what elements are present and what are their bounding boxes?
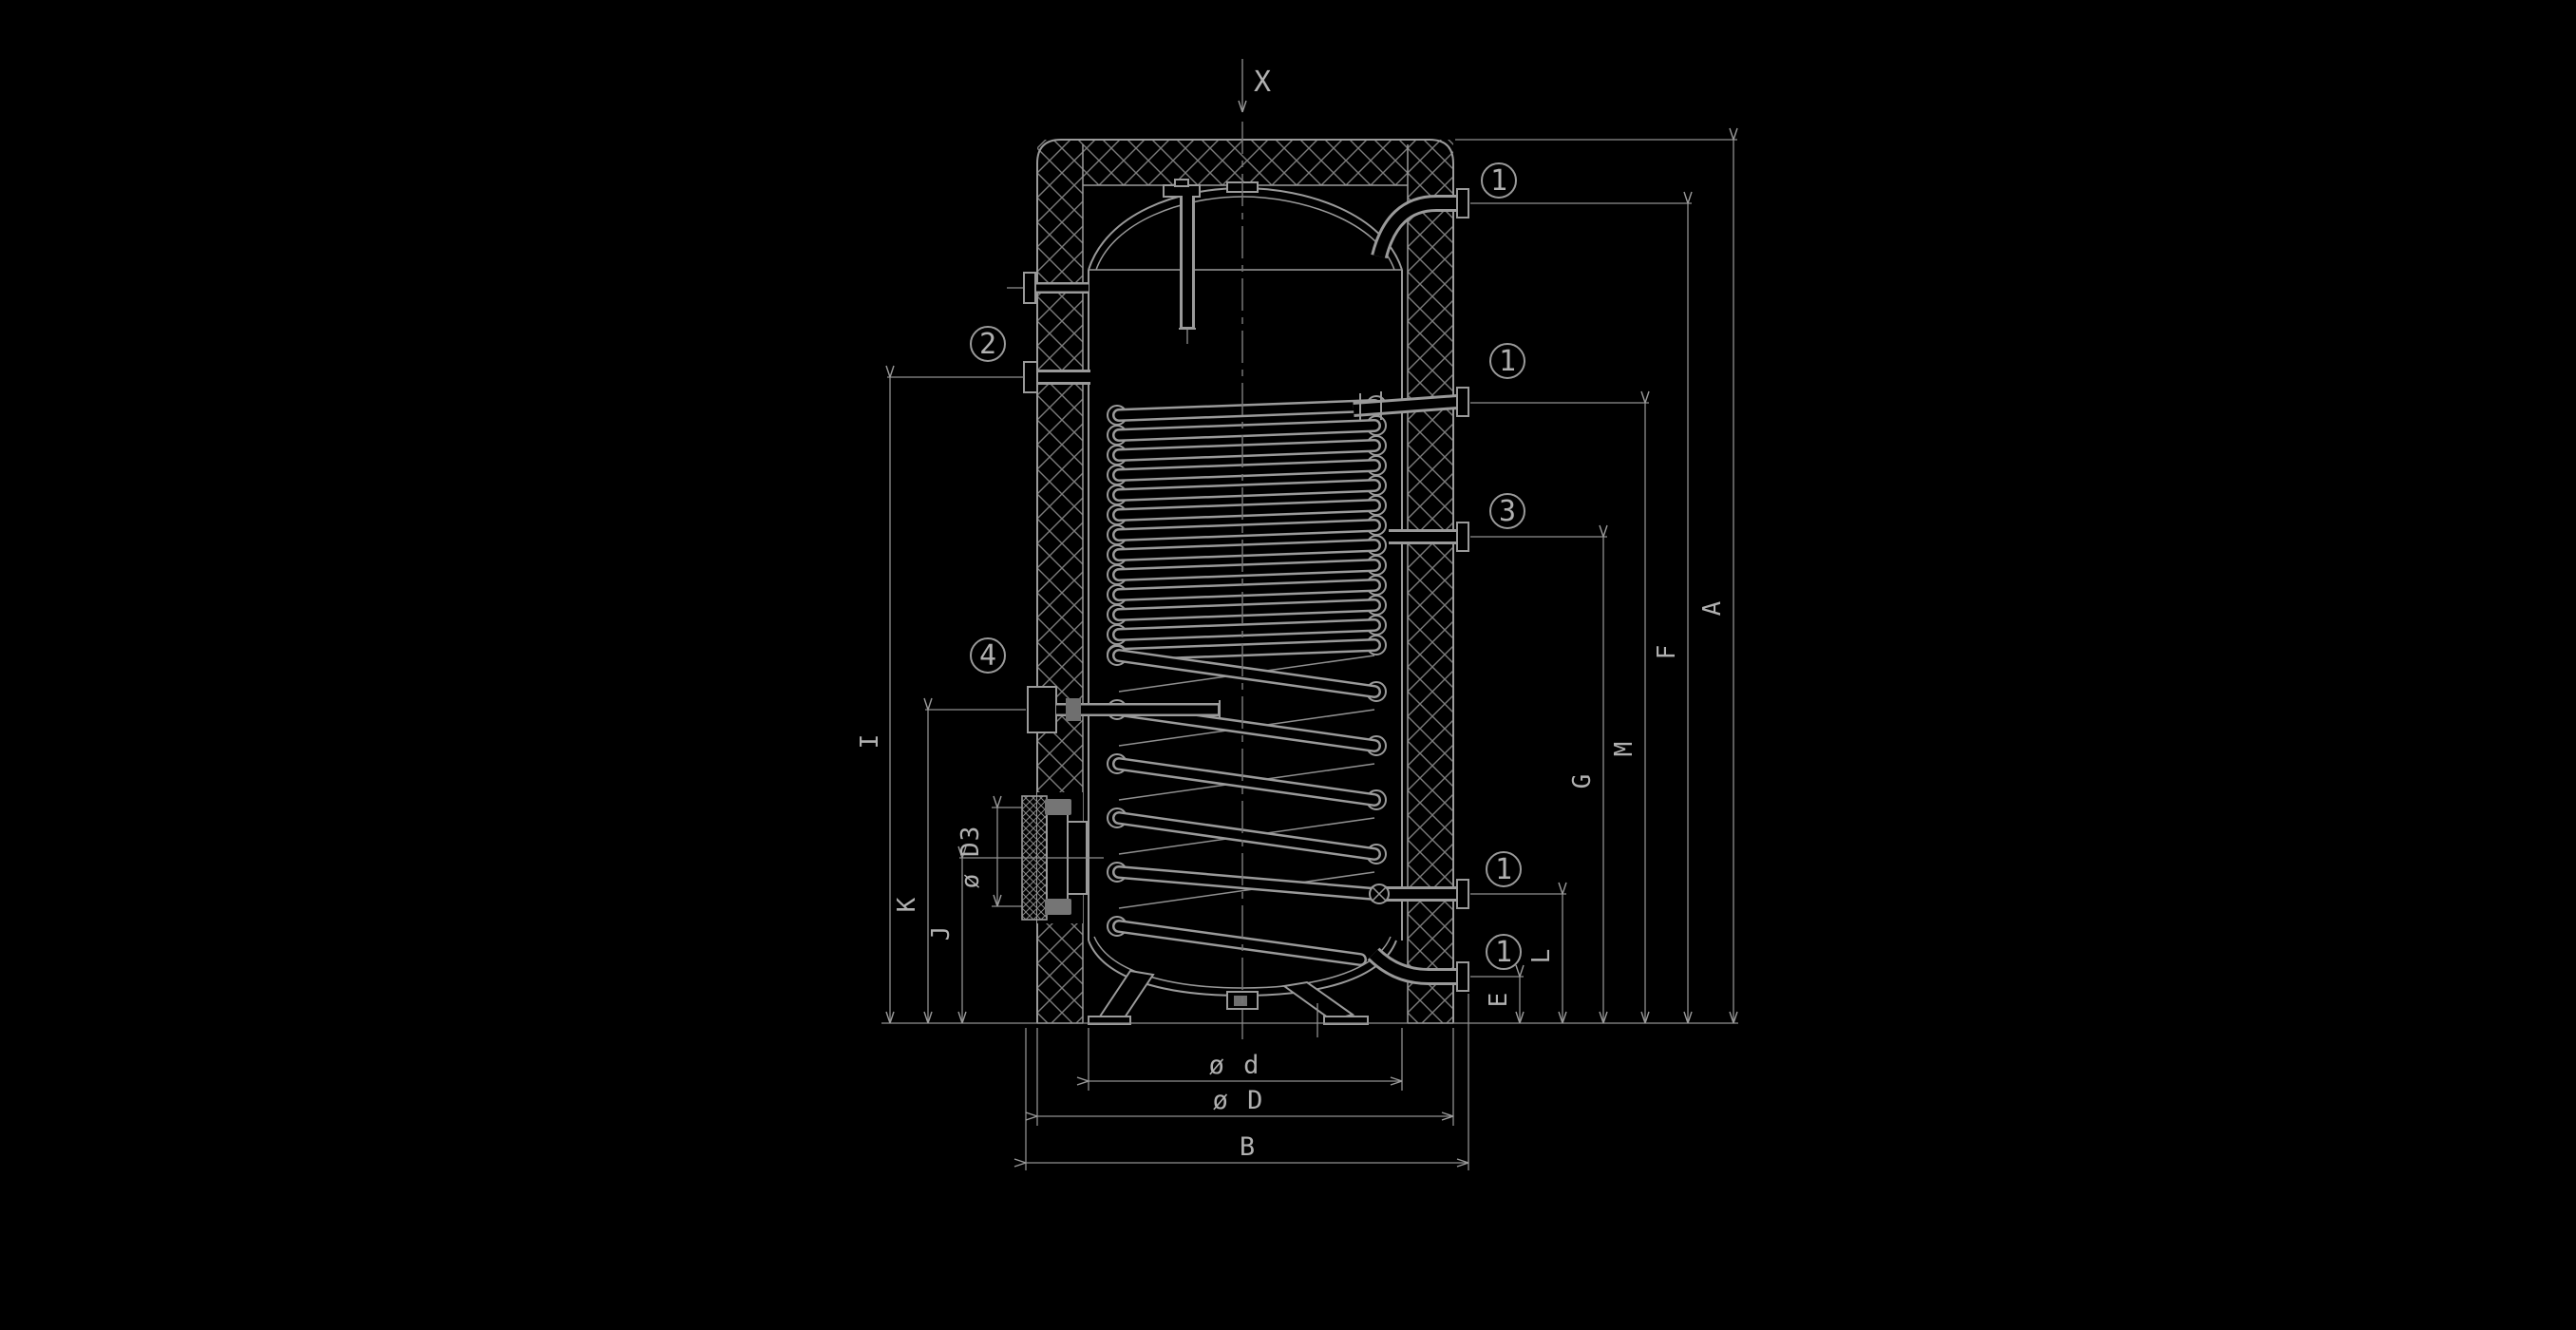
dim-label-F: F (1653, 644, 1681, 660)
callout-label: 3 (1499, 495, 1516, 528)
callout-label: 1 (1490, 164, 1507, 198)
dim-label-G: G (1568, 773, 1597, 789)
callout-label: 4 (979, 639, 996, 673)
compression-fitting (1066, 698, 1081, 721)
support-feet (1089, 971, 1368, 1037)
callout-label: 2 (979, 328, 996, 361)
lower-heating-coil (1108, 646, 1386, 959)
dim-label-E: E (1485, 992, 1513, 1008)
dim-label-B: B (1240, 1132, 1257, 1162)
thermowell-top (1179, 196, 1196, 344)
dim-label-K: K (893, 897, 921, 913)
dim-label-M: M (1610, 741, 1638, 757)
x-marker-label: X (1254, 66, 1271, 99)
callout-label: 1 (1499, 345, 1516, 378)
dim-label-I: I (856, 733, 884, 750)
dim-label-d: ø d (1209, 1051, 1261, 1080)
drawing-canvas: X A F M G L E I K J ø D3 ø d ø D B 1 1 3… (0, 0, 2576, 1330)
callout-label: 1 (1495, 936, 1512, 969)
flange-bolt (1045, 799, 1071, 815)
upper-heating-coil (1108, 396, 1386, 664)
flange-bolt (1045, 899, 1071, 915)
dim-label-D3: ø D3 (957, 826, 985, 889)
dim-label-A: A (1698, 600, 1727, 617)
dim-label-D: ø D (1213, 1086, 1265, 1115)
tank-internals (1164, 180, 1258, 344)
callout-label: 1 (1495, 853, 1512, 886)
dim-label-L: L (1527, 948, 1556, 964)
dim-label-J: J (927, 925, 956, 941)
tank-technical-drawing: X A F M G L E I K J ø D3 ø d ø D B 1 1 3… (0, 0, 2576, 1330)
